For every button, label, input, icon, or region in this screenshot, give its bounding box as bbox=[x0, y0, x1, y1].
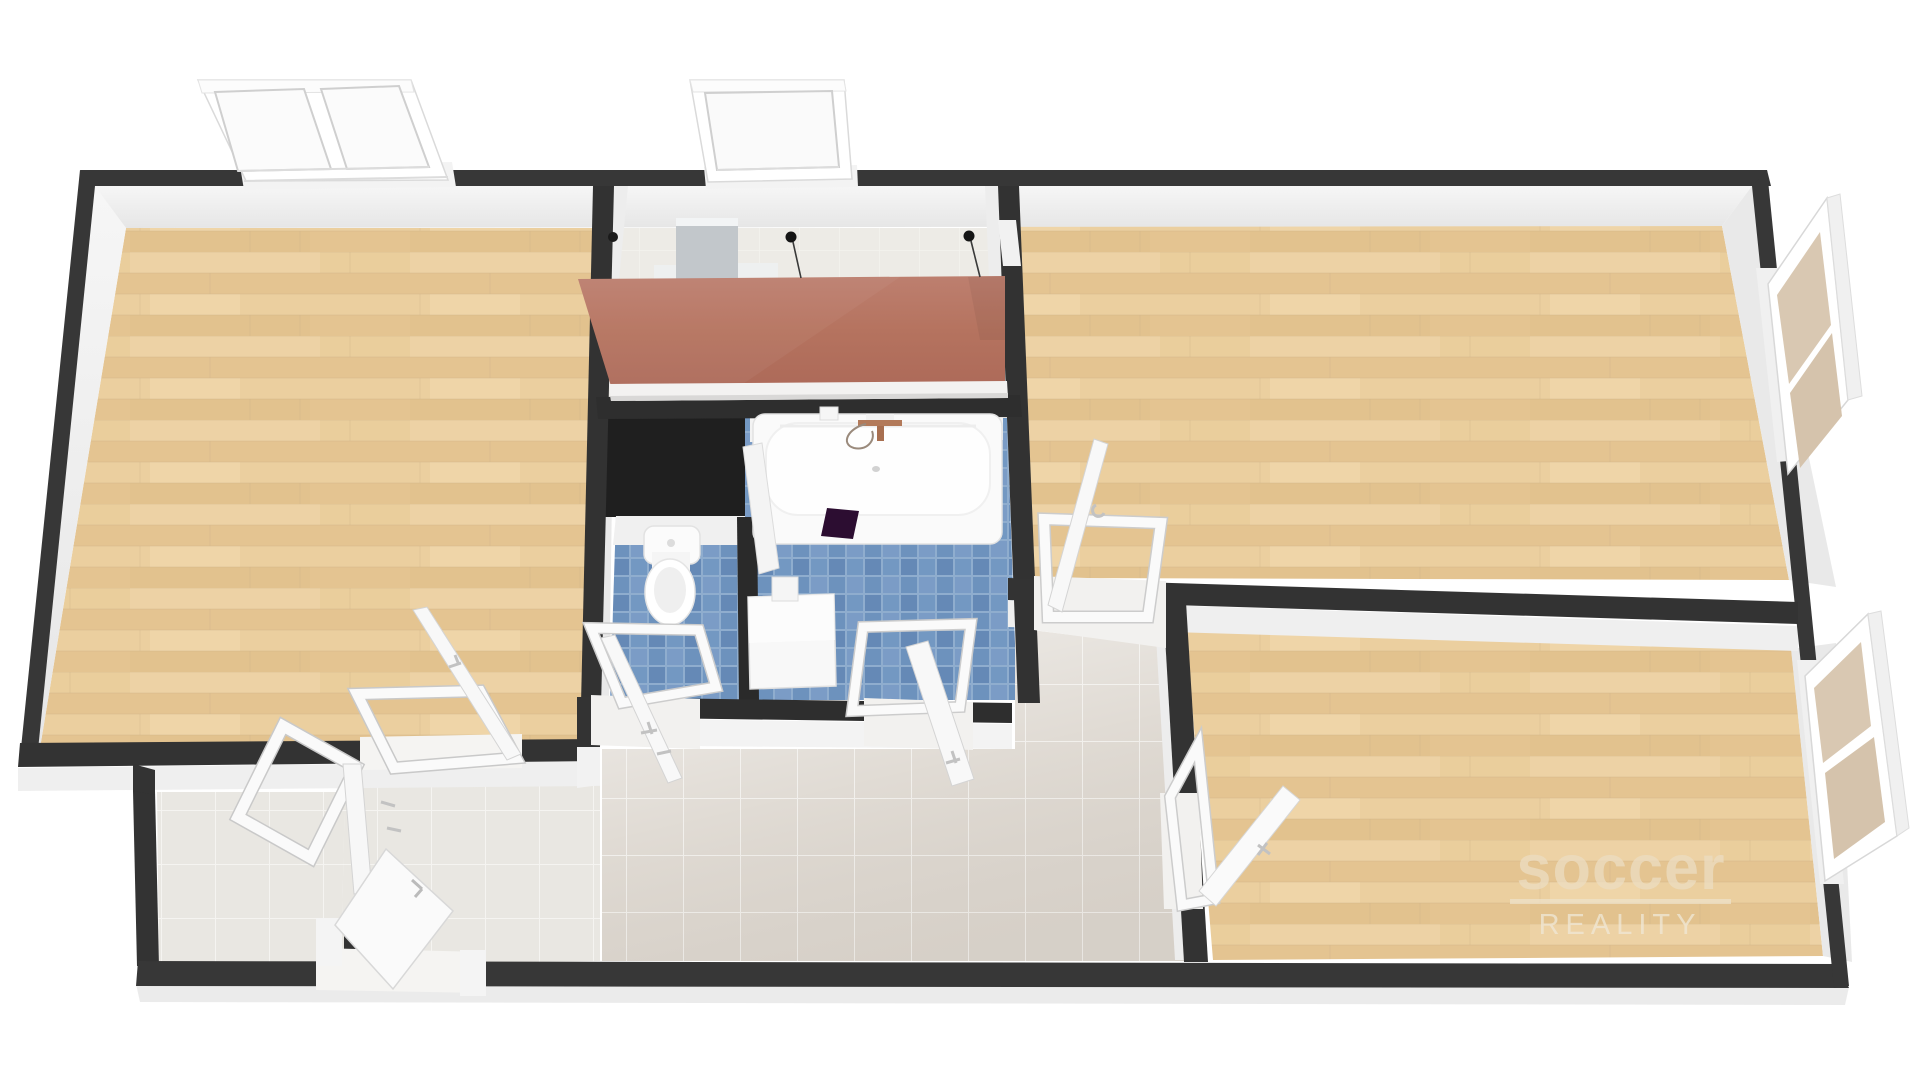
svg-text:REALITY: REALITY bbox=[1539, 909, 1702, 941]
svg-text:soccer: soccer bbox=[1516, 833, 1725, 903]
